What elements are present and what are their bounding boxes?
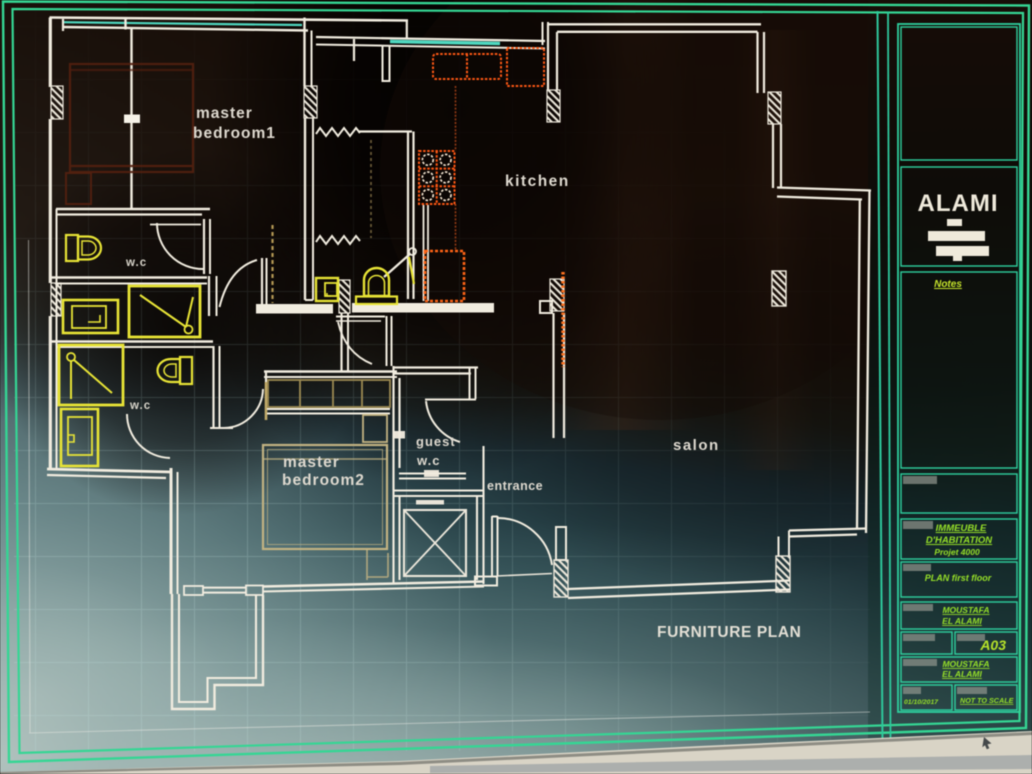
svg-text:ALAMI: ALAMI [918,190,999,217]
svg-text:w.c: w.c [416,453,440,468]
svg-text:Notes: Notes [934,279,962,290]
svg-text:bedroom2: bedroom2 [282,472,365,489]
svg-text:MOUSTAFA: MOUSTAFA [942,605,989,615]
svg-text:IMMEUBLE: IMMEUBLE [936,523,987,534]
svg-text:01/10/2017: 01/10/2017 [904,699,939,706]
svg-text:salon: salon [673,437,720,454]
svg-text:NOT TO SCALE: NOT TO SCALE [960,696,1014,705]
svg-text:bedroom1: bedroom1 [193,125,276,142]
svg-text:master: master [196,105,253,122]
svg-text:PLAN first floor: PLAN first floor [925,573,992,583]
svg-text:EL ALAMI: EL ALAMI [942,669,982,679]
svg-text:entrance: entrance [487,479,543,493]
svg-text:EL ALAMI: EL ALAMI [942,616,982,626]
svg-text:guest: guest [416,434,456,449]
svg-text:master: master [283,454,340,471]
svg-text:A03: A03 [979,637,1006,653]
svg-text:MOUSTAFA: MOUSTAFA [942,659,989,669]
svg-text:w.c: w.c [129,400,151,412]
svg-text:D'HABITATION: D'HABITATION [926,535,993,546]
svg-text:w.c: w.c [125,257,147,269]
svg-text:FURNITURE PLAN: FURNITURE PLAN [657,624,801,641]
svg-text:Projet 4000: Projet 4000 [934,547,980,557]
svg-text:kitchen: kitchen [505,173,570,190]
